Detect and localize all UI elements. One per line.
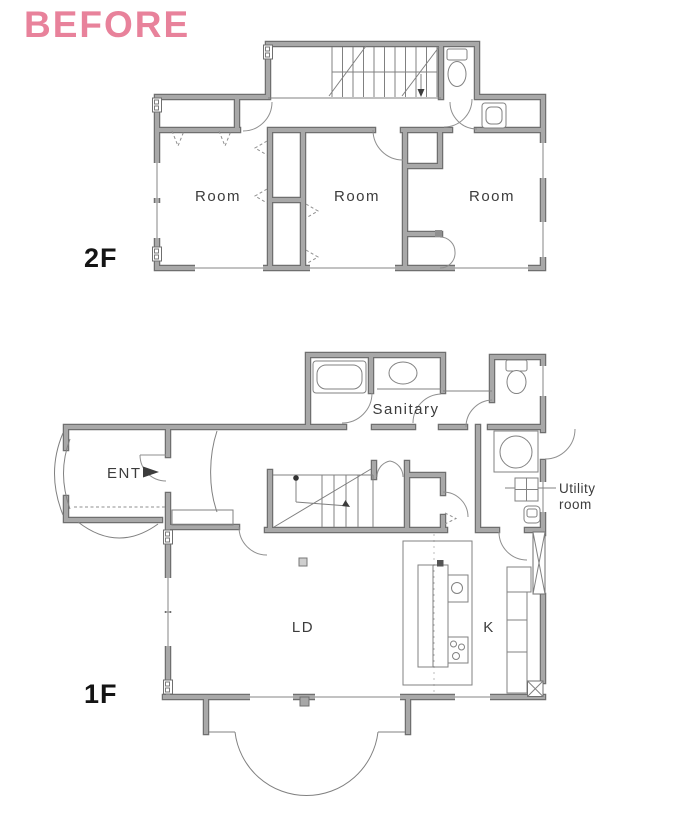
- column-x-icon: [528, 681, 544, 697]
- toilet-2f-icon: [447, 49, 467, 87]
- bathtub-icon: [313, 361, 366, 393]
- stove-icon: [448, 637, 468, 663]
- stairs-2f-steps: [268, 46, 441, 98]
- kitchen-sink-icon: [448, 575, 468, 602]
- entrance-label-group: ENT: [107, 465, 159, 482]
- kitchen-counter: [403, 541, 472, 685]
- floor2-plan: Room Room Room 2F: [84, 44, 543, 273]
- ld-marker-icon: [299, 558, 307, 566]
- kitchen-faucet-icon: [437, 560, 444, 567]
- utility-room-label-line2: room: [559, 497, 592, 512]
- floor2-window-gaps: [157, 143, 543, 268]
- room-label-3: Room: [469, 188, 515, 205]
- stairs-2f-arrow-icon: [418, 89, 425, 97]
- toilet-2f-bowl: [448, 62, 466, 87]
- toilet-1f-icon: [506, 360, 527, 394]
- stairs-1f-arrow-icon: [342, 500, 350, 507]
- utility-room-label-line1: Utility: [559, 481, 596, 496]
- floor1-walls-edge: [66, 355, 543, 732]
- stairs-1f-steps: [273, 469, 373, 527]
- washing-machine-icon: [494, 431, 538, 472]
- stairs-2f-icon: [268, 46, 441, 98]
- entrance-label: ENT: [107, 465, 142, 482]
- utility-sink-icon: [515, 478, 538, 501]
- floor2-label: 2F: [84, 243, 118, 273]
- floor2-windows: [157, 143, 543, 268]
- basin-2f-icon: [482, 103, 506, 128]
- sanitary-label: Sanitary: [372, 401, 439, 418]
- stairs-1f-icon: [273, 469, 373, 527]
- room-label-1: Room: [195, 188, 241, 205]
- kitchen-cabinets: [507, 567, 531, 693]
- floor-plan-page: BEFORE: [0, 0, 680, 818]
- shoe-cabinet: [172, 510, 233, 525]
- floor1-label: 1F: [84, 679, 118, 709]
- door-arcs-2f: [243, 99, 477, 268]
- stairs-1f-start-dot: [293, 475, 299, 481]
- water-heater-icon: [524, 506, 540, 523]
- closet-post-2f: [435, 230, 442, 237]
- living-dining-label: LD: [292, 619, 314, 636]
- toilet-2f-tank: [447, 49, 467, 60]
- door-sill-tab: [300, 697, 309, 706]
- basin-2f-bowl: [486, 107, 502, 124]
- floor-plans-drawing: Room Room Room 2F: [0, 0, 680, 818]
- tall-window-icon: [533, 532, 545, 594]
- room-label-2: Room: [334, 188, 380, 205]
- floor1-walls: [66, 355, 543, 732]
- wall-caps-2f: [153, 45, 273, 261]
- floor2-walls: [157, 44, 543, 268]
- floor2-walls-edge: [157, 44, 543, 268]
- washbasin-icon: [389, 362, 417, 384]
- kitchen-label: K: [483, 619, 495, 636]
- floor1-plan: ENT Sanitary Utility room LD K 1F: [55, 355, 596, 796]
